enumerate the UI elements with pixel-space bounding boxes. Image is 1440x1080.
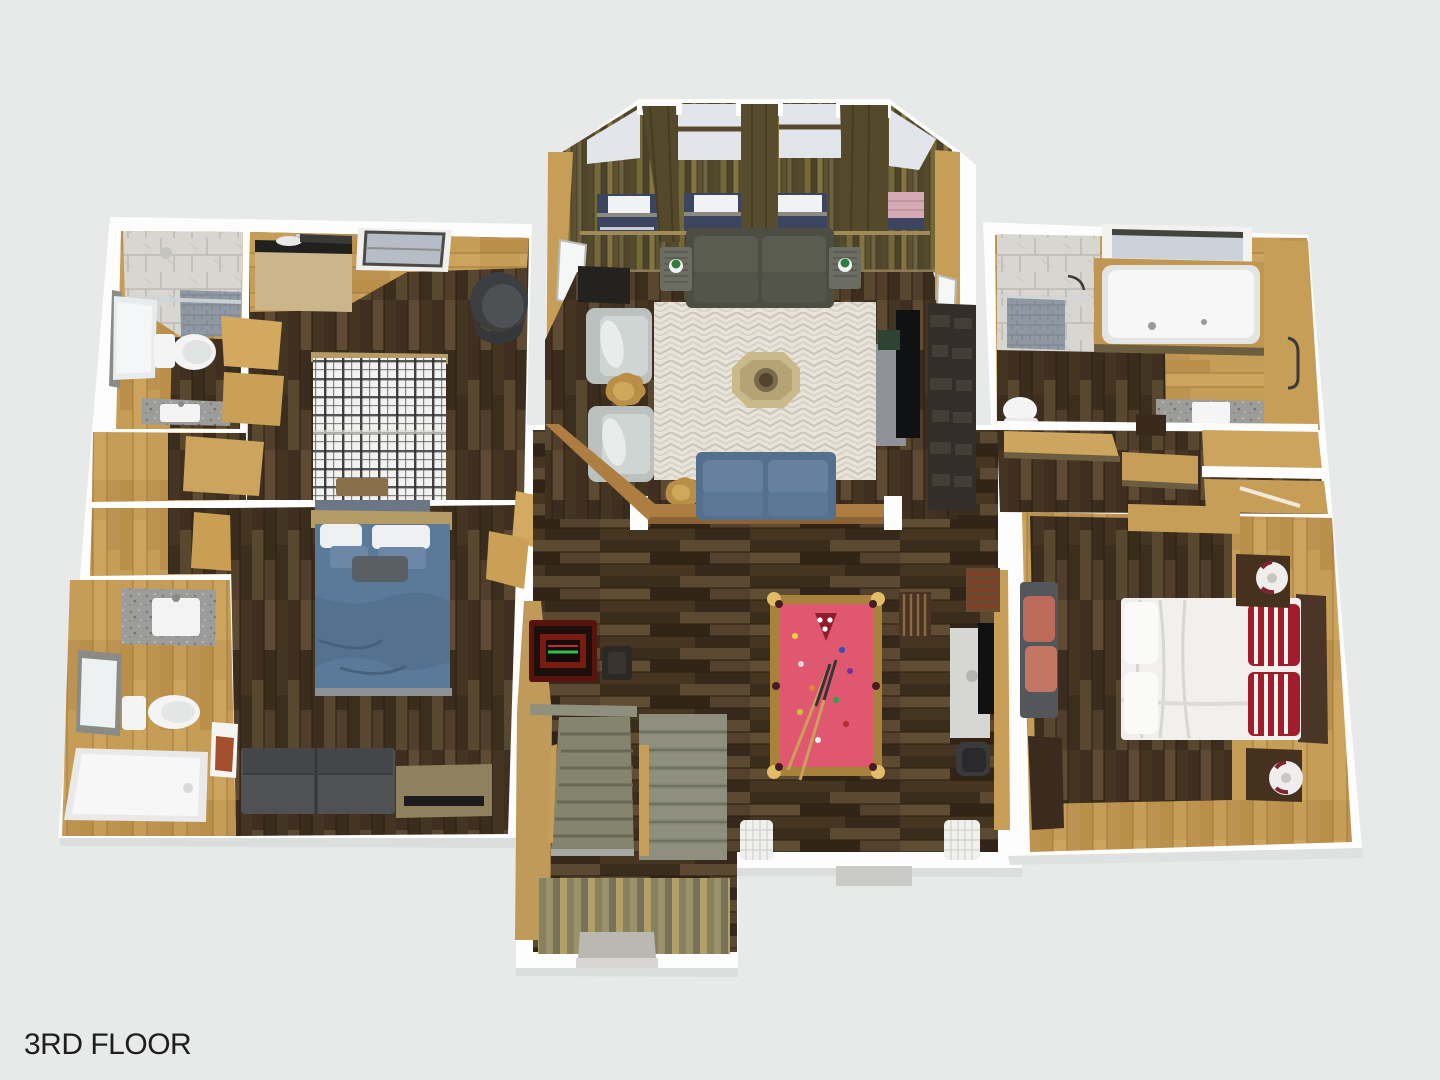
svg-text:3RD FLOOR: 3RD FLOOR	[24, 1028, 191, 1061]
